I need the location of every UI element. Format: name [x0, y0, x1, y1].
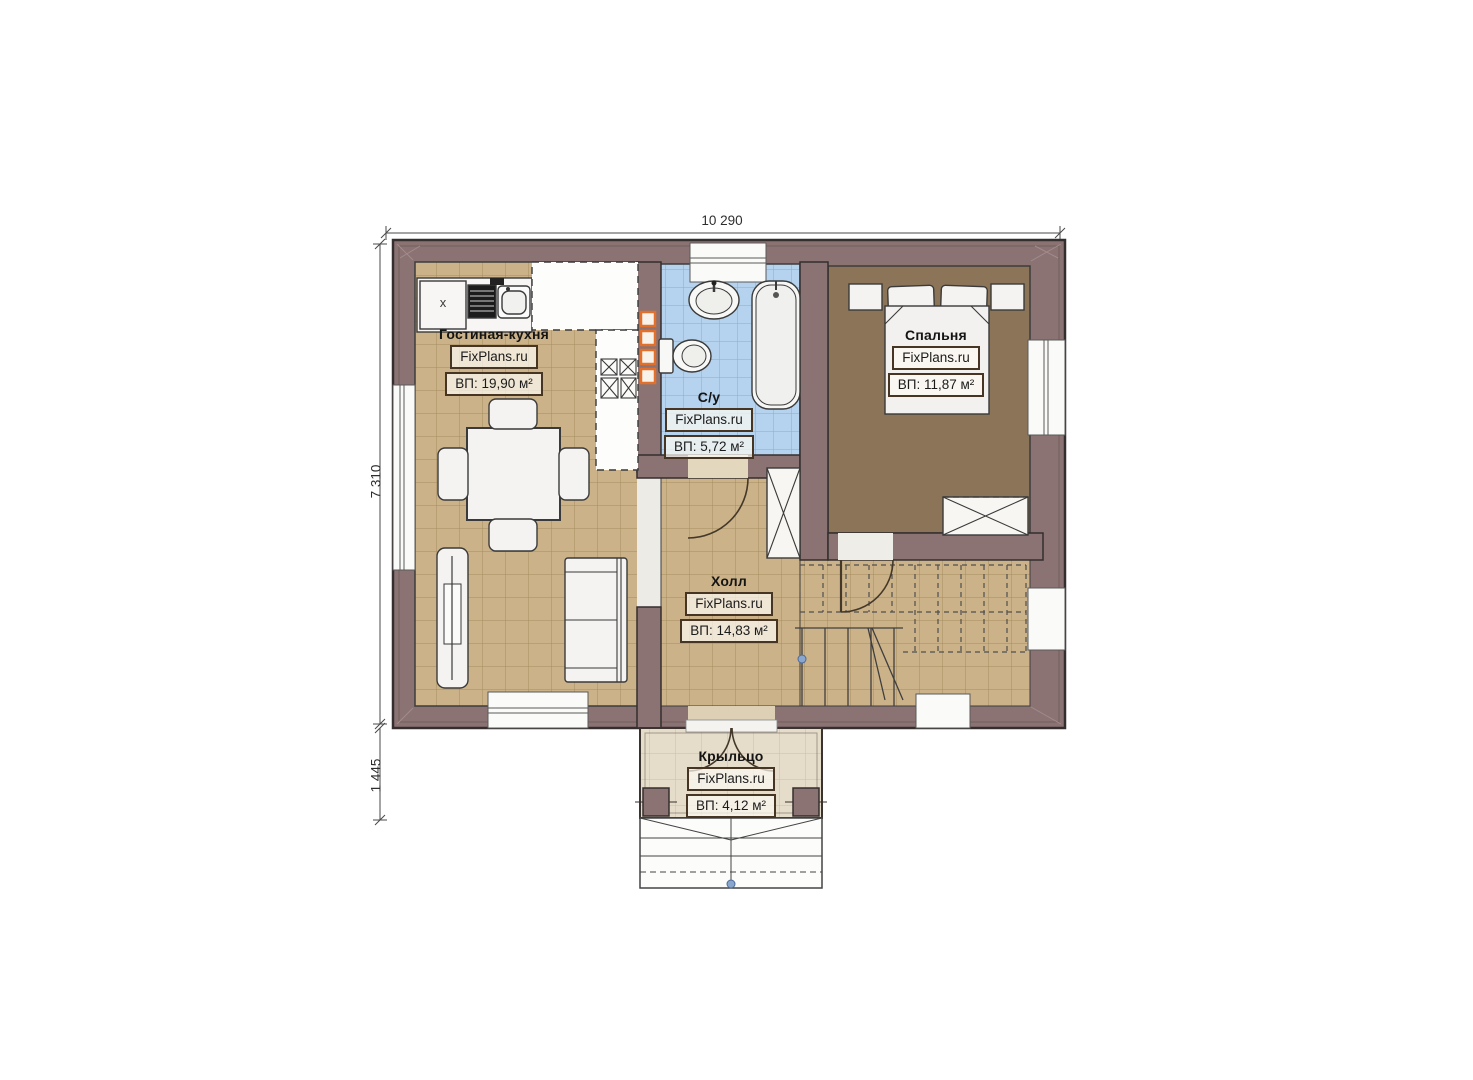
sofa: [565, 558, 627, 682]
chair: [489, 399, 537, 429]
room-title: Крыльцо: [698, 748, 763, 764]
room-label-porch: Крыльцо FixPlans.ru ВП: 4,12 м²: [656, 748, 806, 818]
chair: [438, 448, 468, 500]
wardrobe-bedroom: [943, 497, 1028, 535]
upper-cabinets: [532, 262, 638, 330]
room-area: ВП: 11,87 м²: [888, 373, 985, 397]
wall-bath-bedroom: [800, 262, 828, 560]
brand-badge: FixPlans.ru: [687, 767, 775, 791]
window-stairs-right: [1028, 588, 1065, 650]
window-bedroom-right: [1028, 340, 1065, 435]
window-living-bottom: [488, 692, 588, 728]
dimension-left-label: 7 310: [369, 452, 384, 512]
room-area: ВП: 4,12 м²: [686, 794, 776, 818]
survey-point-icon: [798, 655, 806, 663]
window-stairs-bottom: [916, 694, 970, 728]
dining-table: [467, 428, 560, 520]
chair: [559, 448, 589, 500]
window-bathroom-top: [690, 243, 766, 282]
room-title: Холл: [711, 573, 747, 589]
nightstand: [991, 284, 1024, 310]
dimension-top-label: 10 290: [672, 213, 772, 228]
brand-badge: FixPlans.ru: [450, 345, 538, 369]
vent-block-icon: [641, 331, 655, 345]
floor-plan-canvas: 10 290 7 310 1 445 x Гостиная-кухня FixP…: [0, 0, 1473, 1080]
brand-badge: FixPlans.ru: [892, 346, 980, 370]
wardrobe-hall: [767, 468, 800, 558]
kitchen-cabinet-run: [596, 330, 638, 470]
room-title: Гостиная-кухня: [439, 326, 549, 342]
room-label-living-kitchen: Гостиная-кухня FixPlans.ru ВП: 19,90 м²: [419, 326, 569, 396]
window-living-left: [393, 385, 415, 570]
dimension-porch-label: 1 445: [369, 746, 384, 806]
vent-block-icon: [641, 369, 655, 383]
room-area: ВП: 5,72 м²: [664, 435, 754, 459]
room-title: Спальня: [905, 327, 967, 343]
vent-block-icon: [641, 312, 655, 326]
vent-block-icon: [641, 350, 655, 364]
porch-steps: [640, 818, 822, 888]
room-label-hall: Холл FixPlans.ru ВП: 14,83 м²: [654, 573, 804, 643]
kitchen-cabinet-x-label: x: [420, 295, 466, 310]
survey-point-icon: [727, 880, 735, 888]
room-label-bedroom: Спальня FixPlans.ru ВП: 11,87 м²: [861, 327, 1011, 397]
kitchen-sink-icon: [498, 286, 530, 318]
room-label-bathroom: С/у FixPlans.ru ВП: 5,72 м²: [634, 389, 784, 459]
chair: [489, 519, 537, 551]
bedroom-door-opening: [838, 533, 893, 560]
nightstand: [849, 284, 882, 310]
room-area: ВП: 14,83 м²: [680, 619, 778, 643]
tv-stand: [437, 548, 468, 688]
brand-badge: FixPlans.ru: [685, 592, 773, 616]
room-title: С/у: [698, 389, 720, 405]
room-area: ВП: 19,90 м²: [445, 372, 543, 396]
toilet-icon: [659, 339, 711, 373]
bathroom-sink-icon: [689, 281, 739, 320]
brand-badge: FixPlans.ru: [665, 408, 753, 432]
floor-plan-drawing: [0, 0, 1473, 1080]
